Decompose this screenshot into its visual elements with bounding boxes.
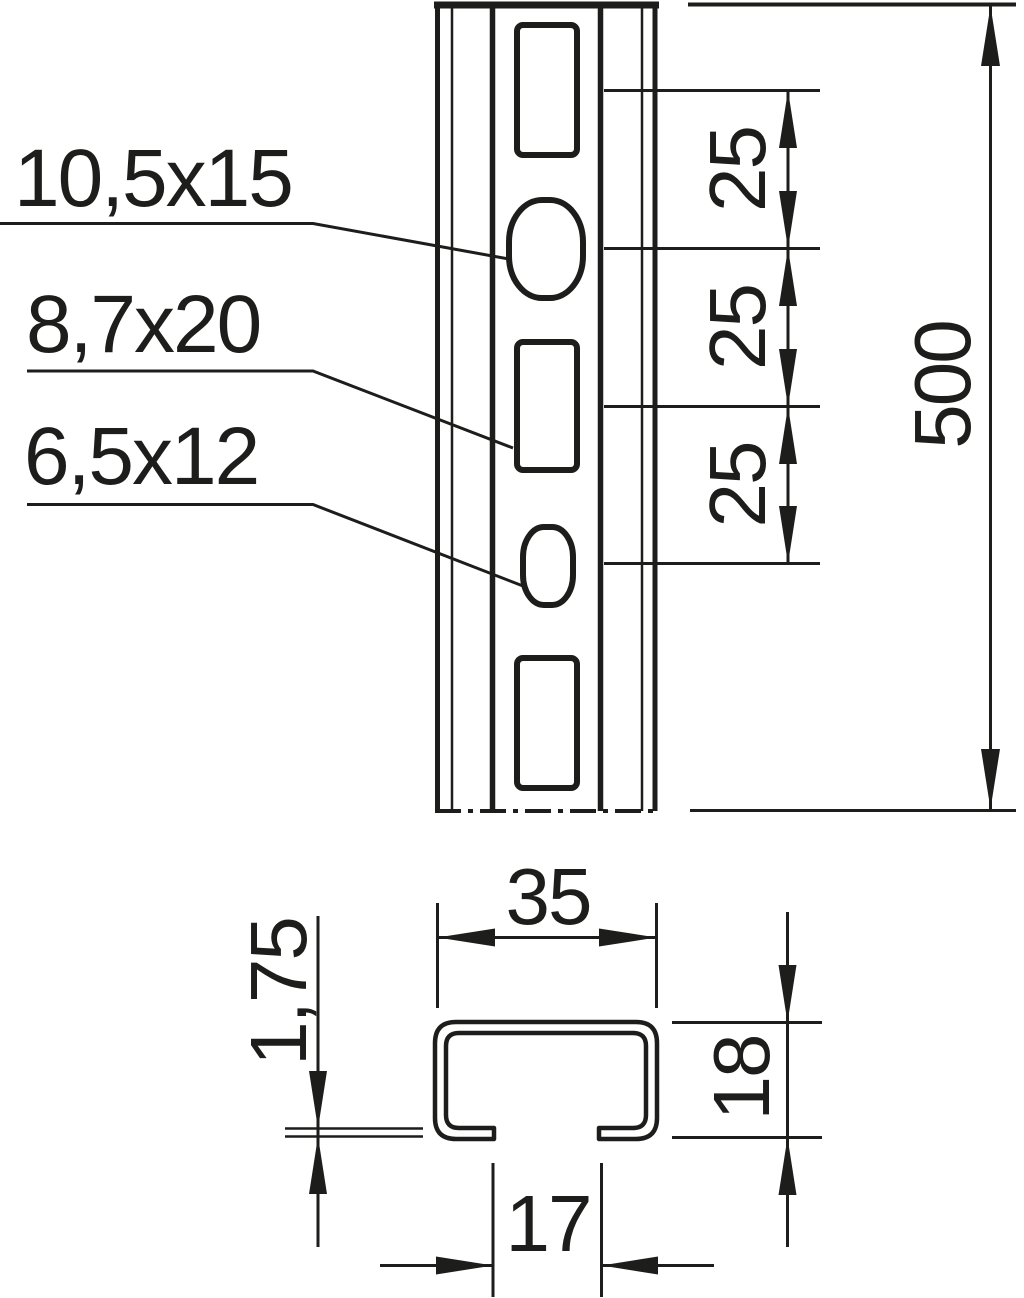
leader-6-5x12 <box>27 505 523 587</box>
label-hole-8-7x20: 8,7x20 <box>26 279 260 370</box>
arrow-left-icon <box>602 1257 659 1275</box>
label-hole-10-5x15: 10,5x15 <box>14 133 292 224</box>
arrow-right-icon <box>436 1257 493 1275</box>
dim-text-thickness: 1,75 <box>234 918 323 1066</box>
oval-hole-10-5x15 <box>509 200 583 298</box>
drawing-page: 10,5x15 8,7x20 6,5x12 25 25 25 500 <box>0 0 1024 1298</box>
dim-text-pitch-1: 25 <box>693 127 782 212</box>
slot-hole-8-7x20 <box>517 342 577 470</box>
dim-text-height: 18 <box>697 1036 786 1121</box>
arrow-up-icon <box>309 1137 327 1195</box>
arrow-down-icon <box>981 749 1000 809</box>
dim-text-pitch-3: 25 <box>693 443 782 528</box>
dim-text-pitch-2: 25 <box>693 285 782 370</box>
slot-hole-bottom <box>517 658 577 788</box>
dim-text-width: 35 <box>506 852 591 941</box>
leader-10-5x15 <box>0 224 509 260</box>
hole-label-leaders <box>0 224 523 587</box>
slot-hole-top <box>517 25 577 155</box>
dim-text-length: 500 <box>898 321 987 448</box>
arrow-up-icon <box>779 1138 797 1196</box>
oval-hole-6-5x12 <box>523 527 573 605</box>
arrow-left-icon <box>438 929 496 947</box>
arrow-down-icon <box>779 965 797 1023</box>
technical-drawing: 10,5x15 8,7x20 6,5x12 25 25 25 500 <box>0 0 1024 1298</box>
label-hole-6-5x12: 6,5x12 <box>24 411 258 502</box>
hole-labels: 10,5x15 8,7x20 6,5x12 <box>14 133 292 502</box>
arrow-down-icon <box>309 1071 327 1129</box>
arrow-right-icon <box>599 929 657 947</box>
dim-text-opening: 17 <box>506 1179 591 1268</box>
arrow-up-icon <box>981 6 1000 66</box>
pitch-dimension-texts: 25 25 25 <box>693 127 782 527</box>
c-profile-section <box>435 1022 657 1139</box>
